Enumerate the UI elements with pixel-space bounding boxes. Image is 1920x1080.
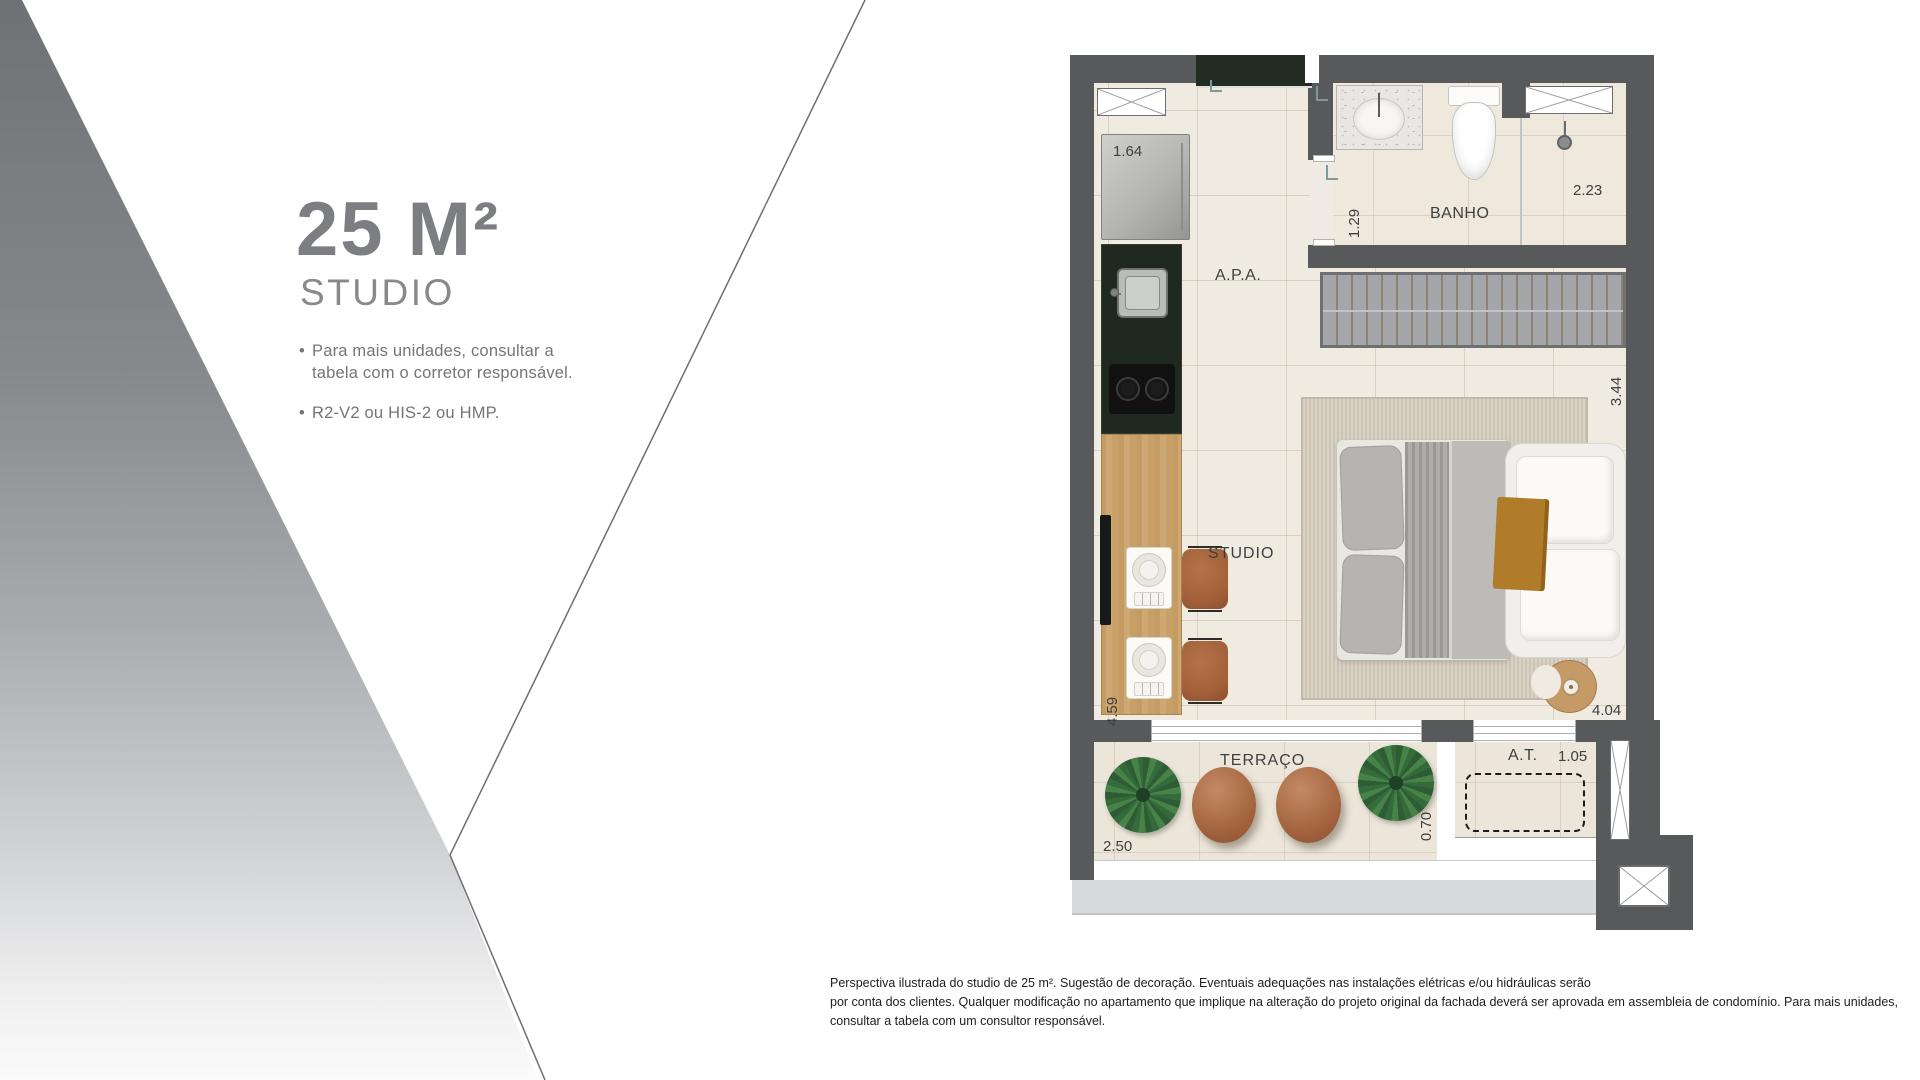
- notes-list: • Para mais unidades, consultar a tabela…: [299, 340, 599, 441]
- page-subtitle: STUDIO: [300, 272, 455, 314]
- table-lamp-icon: [1562, 678, 1580, 696]
- balcony-slab: [1072, 880, 1596, 915]
- cooktop: [1109, 364, 1175, 414]
- note-item: • R2-V2 ou HIS-2 ou HMP.: [299, 402, 599, 424]
- terrace-sliding-door: [1151, 720, 1422, 742]
- entry-opening: [1305, 55, 1319, 83]
- disclaimer-line: Perspectiva ilustrada do studio de 25 m²…: [830, 974, 1898, 993]
- plate-icon: [1132, 553, 1166, 587]
- faucet-icon: [1110, 288, 1119, 297]
- room-label-apa: A.P.A.: [1215, 267, 1261, 285]
- wall-left: [1070, 55, 1094, 880]
- tv: [1100, 515, 1111, 625]
- door-jamb: [1313, 155, 1335, 162]
- room-label-studio: STUDIO: [1208, 545, 1274, 563]
- wall-top: [1070, 55, 1654, 83]
- note-text: Para mais unidades, consultar a tabela c…: [312, 340, 599, 385]
- door-swing-icon: [1210, 80, 1222, 92]
- dim-at-width: 1.05: [1558, 748, 1587, 765]
- note-item: • Para mais unidades, consultar a tabela…: [299, 340, 599, 385]
- pouf: [1276, 767, 1341, 843]
- elevator-shaft-icon: [1610, 740, 1630, 840]
- disclaimer-line: consultar a tabela com um consultor resp…: [830, 1012, 1898, 1031]
- cutlery-icon: [1134, 682, 1164, 696]
- at-window: [1473, 720, 1576, 742]
- room-label-at: A.T.: [1508, 747, 1538, 765]
- disclaimer: Perspectiva ilustrada do studio de 25 m²…: [830, 974, 1898, 1031]
- plant: [1358, 745, 1434, 821]
- wardrobe-rail: [1323, 310, 1623, 312]
- page-title: 25 M²: [296, 186, 500, 273]
- bullet-dot: •: [299, 340, 305, 385]
- burner-icon: [1145, 377, 1169, 401]
- stool: [1182, 641, 1228, 701]
- door-swing-icon: [1316, 86, 1328, 101]
- burner-icon: [1116, 377, 1140, 401]
- door-swing-icon: [1326, 165, 1338, 180]
- pillow: [1339, 445, 1405, 551]
- note-text: R2-V2 ou HIS-2 ou HMP.: [312, 402, 500, 424]
- dim-kitchen-run: 1.64: [1113, 143, 1142, 160]
- railing-band: [1072, 860, 1596, 880]
- basin-faucet-icon: [1378, 93, 1380, 117]
- kitchen-sink: [1117, 268, 1168, 318]
- side-table: [1542, 660, 1597, 713]
- dim-terrace-width: 2.50: [1103, 838, 1132, 855]
- dim-terrace-depth: 0.70: [1418, 812, 1435, 841]
- duct-shaft-icon: [1618, 865, 1670, 907]
- floor-plan: 1.64 BANHO 1.29 2.23 A.P.A. STUDIO 3.44 …: [1070, 55, 1710, 935]
- shower-head-icon: [1557, 135, 1572, 150]
- plate-icon: [1132, 643, 1166, 677]
- plant: [1105, 757, 1181, 833]
- pouf: [1192, 767, 1256, 843]
- dim-bath-width: 2.23: [1573, 182, 1602, 199]
- disclaimer-line: por conta dos clientes. Qualquer modific…: [830, 993, 1898, 1012]
- cutlery-icon: [1134, 592, 1164, 606]
- wall-divider-b: [1422, 720, 1473, 742]
- wall-bathroom-bottom: [1308, 245, 1654, 268]
- room-label-terraco: TERRAÇO: [1220, 752, 1305, 770]
- duct-shaft-icon: [1525, 86, 1613, 114]
- condenser-dashed-box: [1465, 773, 1585, 832]
- dim-bedroom-width: 3.44: [1608, 377, 1625, 406]
- terrace-at-separator: [1437, 742, 1455, 860]
- wardrobe: [1320, 272, 1626, 348]
- bullet-dot: •: [299, 402, 305, 424]
- wall-right: [1626, 55, 1654, 742]
- dim-studio-width: 4.04: [1592, 702, 1621, 719]
- room-label-banho: BANHO: [1430, 205, 1489, 223]
- shower-glass: [1520, 118, 1522, 245]
- at-edge-strip: [1455, 837, 1596, 860]
- dim-studio-length: 4.59: [1104, 697, 1121, 726]
- bed-throw: [1405, 442, 1449, 658]
- mustard-throw: [1493, 497, 1550, 592]
- pillow: [1339, 554, 1404, 655]
- duct-shaft-icon: [1097, 88, 1166, 116]
- door-jamb: [1313, 239, 1335, 246]
- dim-bath-entry: 1.29: [1346, 209, 1363, 238]
